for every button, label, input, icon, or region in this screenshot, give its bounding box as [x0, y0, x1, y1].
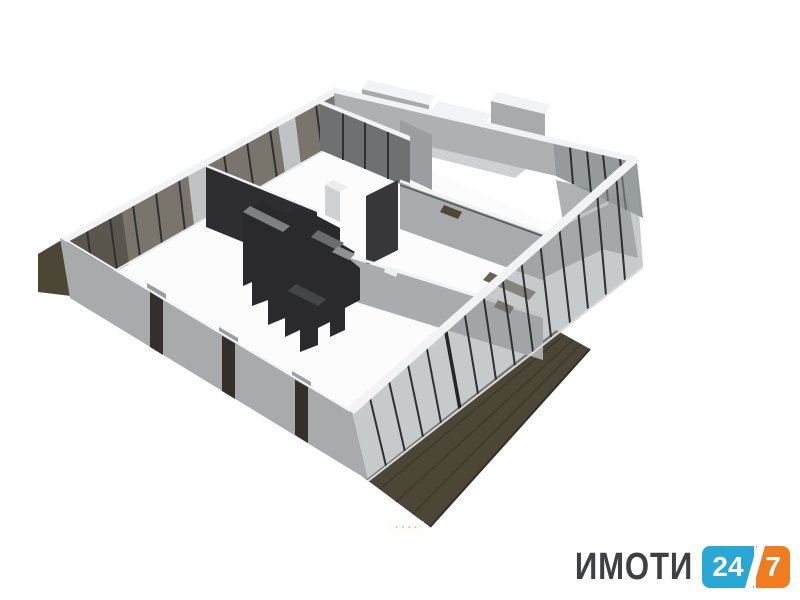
small-watermark-marks: - - - -: [395, 524, 417, 531]
logo-brand-text: ИМОТИ: [575, 548, 693, 586]
door-opening: [222, 335, 235, 399]
floorplan-3d-render: [0, 0, 800, 600]
logo-badge-247: 24 7: [702, 546, 790, 588]
imoti247-logo: ИМОТИ 24 7: [549, 546, 790, 588]
real-estate-render-page: - - - - ИМОТИ 24 7: [0, 0, 800, 600]
door-opening: [150, 292, 163, 355]
door-opening: [295, 379, 308, 443]
small-watermark: - - - -: [389, 521, 424, 533]
